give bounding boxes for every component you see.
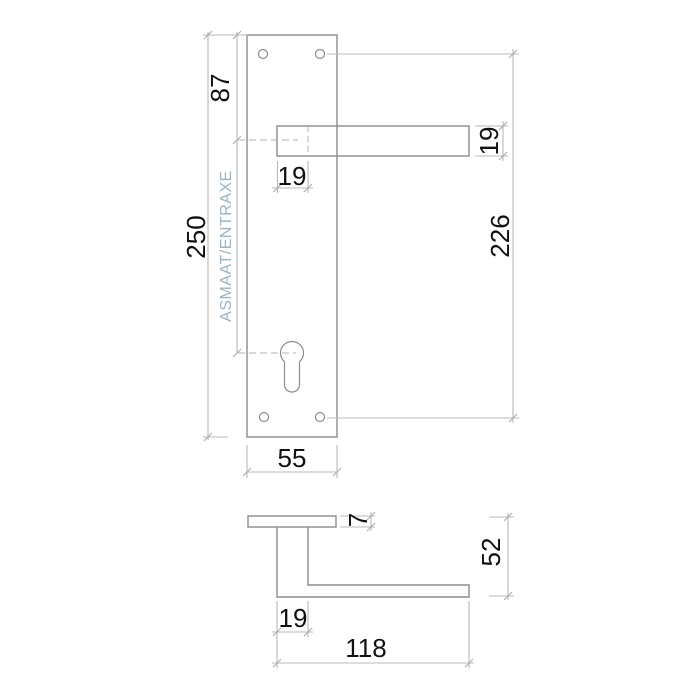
dim-87-label: 87 — [207, 74, 233, 103]
front-view — [203, 31, 519, 478]
backplate-side-outline — [248, 516, 336, 527]
screw-hole-bottom-left — [260, 413, 269, 422]
drawing-linework — [0, 0, 700, 700]
euro-cylinder-keyhole — [281, 341, 304, 392]
front-dimension-lines — [208, 32, 513, 472]
dim-118-label: 118 — [345, 635, 386, 661]
screw-hole-bottom-right — [316, 413, 325, 422]
lever-handle-side-profile — [277, 527, 469, 597]
dim-226-label: 226 — [487, 214, 513, 257]
dim-250-label: 250 — [183, 215, 209, 258]
technical-drawing-door-handle: 87 250 ASMAAT/ENTRAXE 19 19 226 55 7 52 … — [0, 0, 700, 700]
backplate-outline — [247, 35, 337, 437]
dim-19-lever-label: 19 — [476, 127, 502, 156]
side-dimension-ticks — [273, 512, 512, 667]
lever-handle-front — [277, 126, 469, 156]
screw-hole-top-left — [259, 50, 268, 59]
front-extension-lines — [203, 35, 519, 478]
screw-hole-top-right — [316, 50, 325, 59]
front-dimension-ticks — [204, 31, 517, 476]
center-distance-label: ASMAAT/ENTRAXE — [219, 170, 235, 322]
dim-19-neck-label: 19 — [278, 163, 307, 189]
dim-55-label: 55 — [278, 445, 307, 471]
dim-52-label: 52 — [478, 538, 504, 567]
dim-19-side-label: 19 — [279, 605, 308, 631]
dim-7-label: 7 — [345, 513, 371, 527]
